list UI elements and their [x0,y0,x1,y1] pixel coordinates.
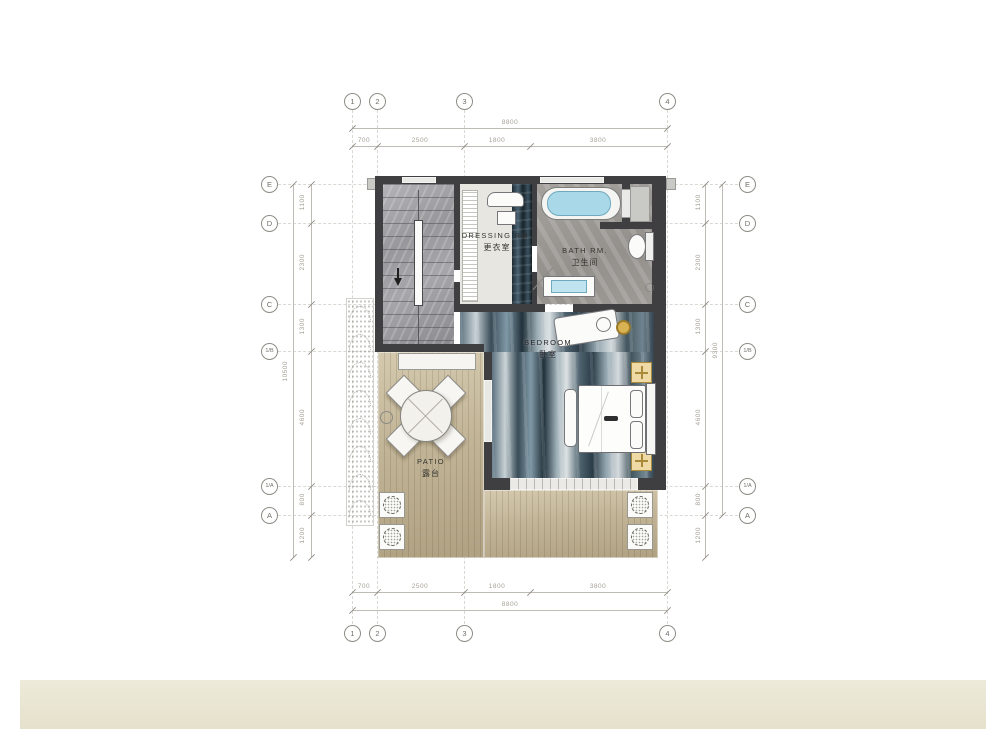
floor-drain [645,283,654,292]
wall-bath-partition [600,222,654,229]
dim-text: 1800 [475,584,519,591]
room-label-bath: BATH RM. 卫生间 [530,246,640,268]
dim-text: 1300 [696,304,703,348]
dim-text: 700 [342,138,386,145]
deck-drain [380,411,393,424]
dim-text: 2300 [300,240,307,284]
dim-tick [308,554,315,561]
grid-bubble-1a-right: 1/A [739,478,756,495]
dim-line-top-overall [352,128,667,129]
dim-text: 1200 [696,513,703,557]
grid-bubble-1b-right: 1/B [739,343,756,360]
dim-tick [290,554,297,561]
wall-pier [666,178,676,190]
dim-line-right-overall [722,184,723,515]
deck-planter [379,524,405,550]
wall-bedroom-north [573,304,666,312]
grid-bubble-1-top: 1 [344,93,361,110]
dim-text-left-overall: 10500 [283,349,290,393]
stair-handrail [414,220,423,306]
dim-text-right-overall: 9300 [713,328,720,372]
grid-bubble-e-right: E [739,176,756,193]
dim-text: 1100 [696,180,703,224]
room-label-dressing-en: DRESSING RM. [442,231,552,240]
wall-bedroom-north [454,304,545,312]
patio-planter-bench [398,353,476,370]
deck-planter [627,524,653,550]
dim-tick [702,554,709,561]
deck-planter [627,492,653,518]
room-label-patio-en: PATIO [376,457,486,466]
dim-text: 1800 [475,138,519,145]
room-label-patio: PATIO 露台 [376,457,486,479]
dim-text: 4600 [696,395,703,439]
room-label-bedroom-zh: 卧室 [493,349,603,360]
dim-text: 1100 [300,180,307,224]
dim-line-bottom-overall [352,610,667,611]
wall-stair-dressing [454,282,460,304]
wall-west [375,176,383,352]
dim-text-bottom-overall: 8800 [488,602,532,609]
dim-text: 1300 [300,304,307,348]
dim-text: 1200 [300,513,307,557]
grid-bubble-d-right: D [739,215,756,232]
bathtub-water [547,191,611,216]
plant [631,528,649,546]
room-label-bedroom: BEDROOM 卧室 [493,338,603,360]
hedge-strip [346,298,374,526]
dim-text: 2500 [398,584,442,591]
plant [631,496,649,514]
nightstand [631,362,652,383]
grid-bubble-1b-left: 1/B [261,343,278,360]
ledge-ne [630,186,650,222]
grid-bubble-4-bottom: 4 [659,625,676,642]
dim-line-left-segments [311,184,312,557]
wall-stair-south [375,344,484,352]
bed-bench [564,389,577,447]
grid-bubble-a-left: A [261,507,278,524]
grid-bubble-4-top: 4 [659,93,676,110]
dim-line-bottom-segments [352,592,667,593]
bed-buttons [604,416,618,421]
grid-bubble-c-right: C [739,296,756,313]
toilet-tank [645,232,654,261]
grid-bubble-2-bottom: 2 [369,625,386,642]
dressing-stool [497,211,516,225]
dim-text: 3800 [576,584,620,591]
wall-east-upper [652,176,666,312]
headboard [646,383,656,455]
drawing-sheet: 8800 700 2500 1800 3800 700 2500 1800 38… [0,0,1008,756]
grid-bubble-c-left: C [261,296,278,313]
plant [383,496,401,514]
stair-arrow-head [394,278,402,290]
bathtub-step [621,189,631,218]
footer-bar: 8 |TOWNHOUSE VILLA-C3stFloor LAYOUT C栋庭院… [20,680,986,729]
pillow [630,421,643,449]
room-label-bath-en: BATH RM. [530,246,640,255]
dim-line-right-segments [705,184,706,557]
dim-line-top-segments [352,146,667,147]
wall-stair-dressing [454,184,460,270]
wall-bedroom-south [484,478,510,490]
grid-bubble-1a-left: 1/A [261,478,278,495]
room-label-bedroom-en: BEDROOM [493,338,603,347]
deck-planter [379,492,405,518]
grid-bubble-e-left: E [261,176,278,193]
dim-text: 2500 [398,138,442,145]
grid-bubble-a-right: A [739,507,756,524]
grid-bubble-1-bottom: 1 [344,625,361,642]
gold-side-table [616,320,631,335]
dim-line-left-overall [293,184,294,557]
plant [383,528,401,546]
window-north-2 [540,177,604,183]
grid-bubble-3-top: 3 [456,93,473,110]
dim-text: 2300 [696,240,703,284]
grid-bubble-3-bottom: 3 [456,625,473,642]
dressing-bench [487,192,524,207]
window-bedroom-south [510,478,638,490]
dim-text-top-overall: 8800 [488,120,532,127]
patio-door-glass [484,380,492,442]
wall-bedroom-south [638,478,666,490]
room-label-bath-zh: 卫生间 [530,257,640,268]
room-label-patio-zh: 露台 [376,468,486,479]
wall-bedroom-west [484,352,492,380]
vanity-sink [551,280,587,293]
chaise-pillow [596,317,611,332]
grid-bubble-d-left: D [261,215,278,232]
dim-text: 4600 [300,395,307,439]
grid-bubble-2-top: 2 [369,93,386,110]
pillow [630,390,643,418]
dim-text: 3800 [576,138,620,145]
dim-text: 700 [342,584,386,591]
window-north-1 [402,177,436,183]
